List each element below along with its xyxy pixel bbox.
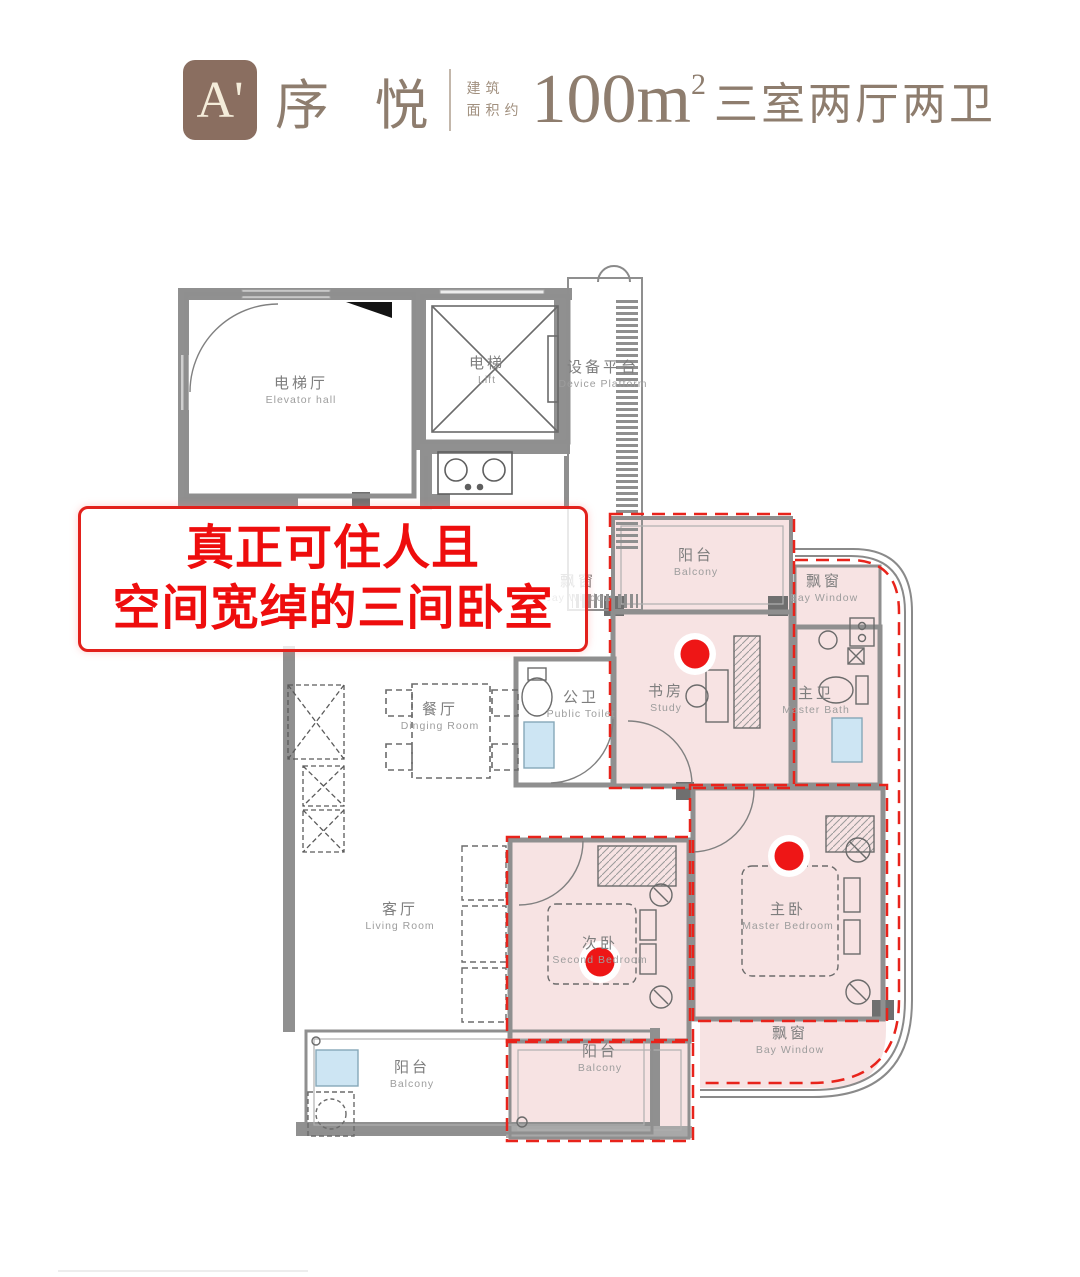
lift-cross-icon	[432, 306, 558, 432]
public-toilet-fixtures	[522, 668, 554, 768]
dining-table-icon	[386, 684, 518, 778]
annotation-line2: 空间宽绰的三间卧室	[112, 579, 553, 639]
bottom-divider	[58, 1270, 308, 1272]
annotation-line1: 真正可住人且	[186, 519, 480, 579]
stove-icon	[438, 452, 512, 494]
living-sofa-icon	[462, 846, 506, 1022]
window-slots	[181, 290, 544, 410]
annotation-banner: 真正可住人且 空间宽绰的三间卧室	[78, 506, 588, 652]
balcony-fixtures	[308, 1037, 527, 1136]
shaft-boxes	[288, 685, 344, 852]
